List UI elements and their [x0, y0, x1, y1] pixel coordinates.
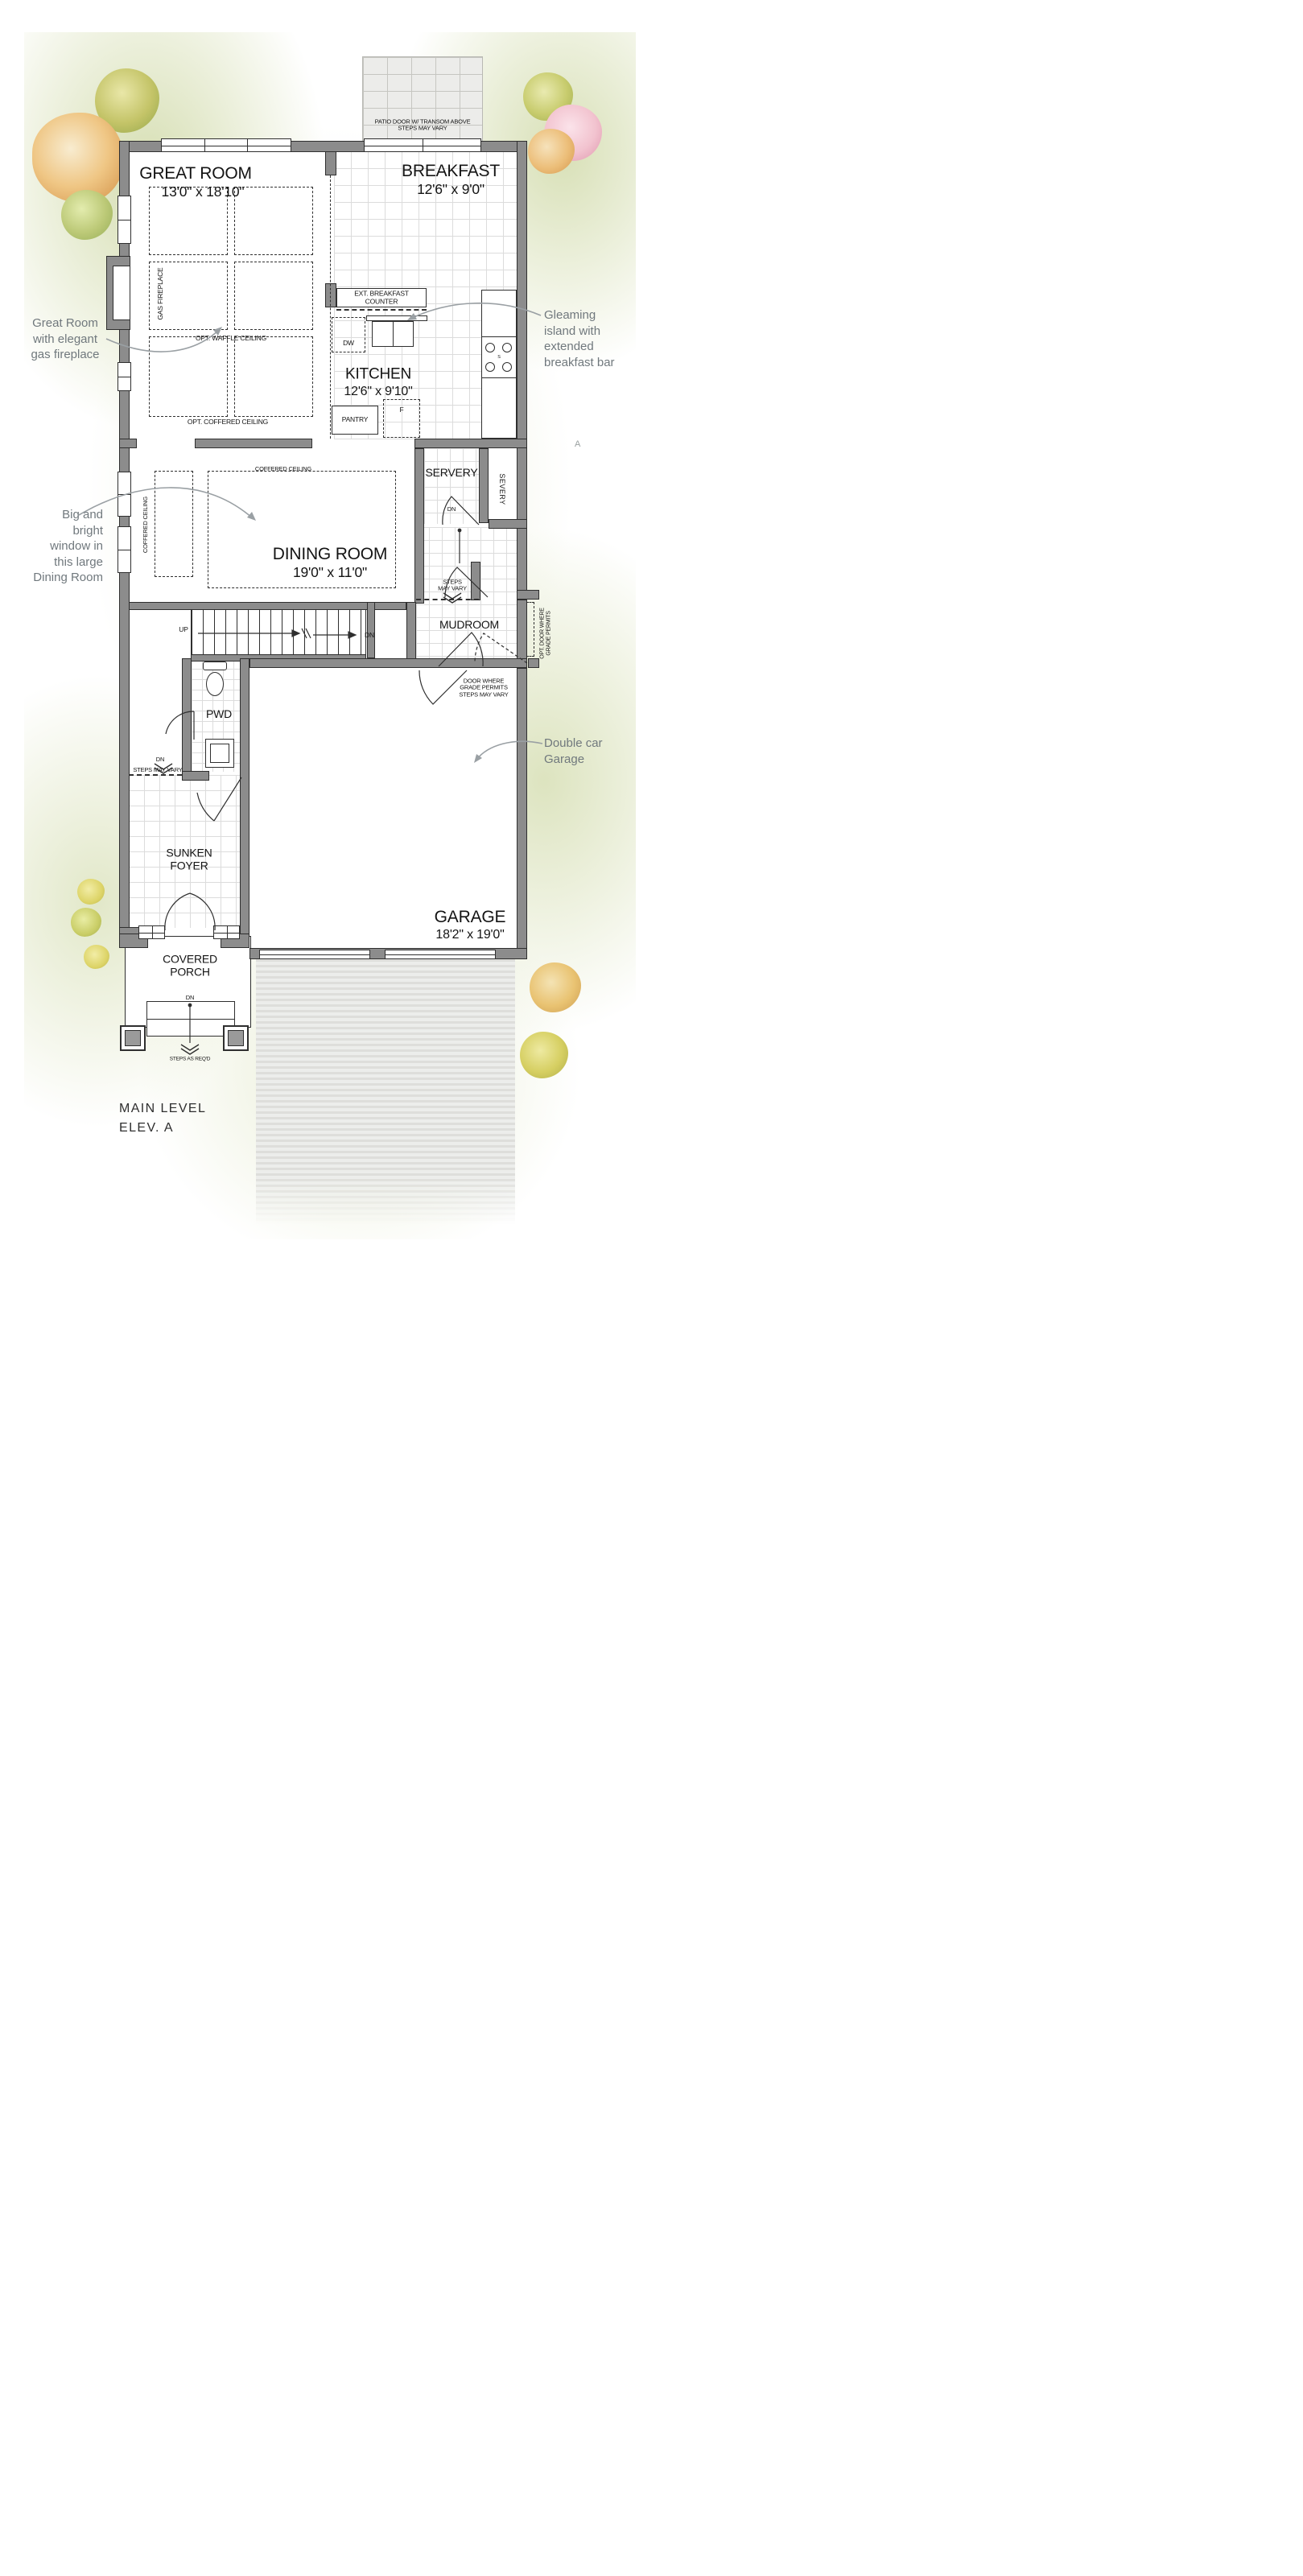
annotation-garage: Double car Garage: [544, 736, 633, 767]
toilet-bowl: [206, 672, 224, 696]
window-mullion: [152, 926, 153, 938]
wall: [489, 519, 527, 529]
dn-stairs-label: DN: [359, 632, 380, 640]
wall: [325, 283, 336, 307]
plan-title: MAIN LEVEL ELEV. A: [119, 1099, 206, 1138]
toilet-tank: [203, 662, 227, 670]
driveway: [256, 959, 515, 1225]
wall: [325, 151, 336, 175]
wall: [249, 658, 527, 668]
kitchen-dims: 12'6" x 9'10": [322, 385, 435, 399]
sunken-foyer-label: SUNKEN FOYER: [149, 847, 229, 872]
mudroom-label: MUDROOM: [425, 619, 513, 632]
patio-door: [364, 138, 481, 152]
window: [118, 362, 131, 391]
steps-hall-label: STEPS MAY VARY: [122, 767, 194, 773]
waffle-ceiling-cell: [234, 262, 313, 330]
up-label: UP: [173, 626, 194, 634]
garage-door-note: DOOR WHERE GRADE PERMITS STEPS MAY VARY: [447, 678, 520, 698]
vanity-sink-basin: [210, 744, 229, 763]
window-mullion: [227, 926, 228, 938]
garage-label: GARAGE: [406, 908, 534, 927]
tree-icon: [32, 113, 124, 203]
island-counter-edge: [366, 315, 427, 321]
opt-coffered-label: OPT. COFFERED CEILING: [171, 418, 284, 427]
window: [138, 925, 165, 939]
gas-fireplace-label: GAS FIREPLACE: [157, 268, 165, 320]
sink-divider: [393, 322, 394, 346]
dining-room-dims: 19'0" x 11'0": [249, 565, 410, 581]
garage-door-panel: [259, 950, 370, 959]
staircase[interactable]: [191, 609, 366, 655]
steps-mudroom-label: STEPS MAY VARY: [424, 579, 480, 593]
fridge: [383, 399, 420, 438]
opt-waffle-label: OPT. WAFFLE CEILING: [179, 335, 283, 343]
powder-label: PWD: [195, 708, 243, 721]
window: [213, 925, 240, 939]
great-room-dims: 13'0" x 18'10": [122, 184, 283, 200]
pantry-label: PANTRY: [332, 416, 377, 424]
firebox: [113, 266, 130, 320]
wall: [414, 439, 527, 448]
breakfast-dims: 12'6" x 9'0": [378, 182, 523, 198]
window: [118, 472, 131, 517]
waffle-ceiling-cell: [149, 336, 228, 417]
window: [118, 196, 131, 244]
wall: [367, 602, 375, 658]
dn-hall-label: DN: [151, 756, 170, 763]
wall: [182, 658, 192, 779]
opt-door-leaf: [526, 602, 534, 657]
annotation-fireplace: Great Room with elegant gas fireplace: [24, 315, 106, 363]
annotation-dining-window: Big and bright window in this large Dini…: [18, 507, 103, 586]
servery-closet-label: SEVERY: [498, 473, 506, 505]
servery-label: SERVERY: [415, 467, 488, 480]
wall: [517, 590, 539, 600]
ext-counter-label: EXT. BREAKFAST COUNTER: [337, 290, 426, 305]
window: [118, 526, 131, 573]
great-room-label: GREAT ROOM: [99, 164, 292, 183]
coffered-ceiling-box: [155, 471, 193, 577]
steps-porch-label: STEPS AS REQ'D: [154, 1056, 226, 1061]
wall: [528, 658, 539, 668]
window-mullion: [204, 139, 205, 151]
porch-pillar: [223, 1025, 249, 1051]
window-mullion: [247, 139, 248, 151]
coffered-label-v: COFFERED CEILING: [142, 497, 149, 553]
dn-porch-label: DN: [180, 995, 200, 1001]
wall: [195, 439, 312, 448]
opt-door-label: OPT. DOOR WHERE GRADE PERMITS: [540, 608, 554, 659]
fridge-label: F: [394, 406, 410, 414]
dining-room-label: DINING ROOM: [225, 545, 435, 564]
dishwasher-label: DW: [336, 340, 361, 348]
steps-line: [416, 599, 479, 600]
counter-dashed-edge: [336, 309, 427, 311]
kitchen-label: KITCHEN: [314, 365, 443, 382]
porch-step-line: [146, 1019, 235, 1020]
annotation-island: Gleaming island with extended breakfast …: [544, 307, 633, 370]
breakfast-label: BREAKFAST: [362, 162, 539, 181]
steps-line: [129, 774, 182, 776]
window-mullion: [423, 139, 423, 151]
porch-pillar: [120, 1025, 146, 1051]
garage-door-panel: [385, 950, 496, 959]
garage-dims: 18'2" x 19'0": [414, 928, 526, 942]
waffle-ceiling-cell: [234, 336, 313, 417]
floor-plan: PATIO DOOR W/ TRANSOM ABOVE STEPS MAY VA…: [0, 0, 652, 1288]
coffered-label-h: COFFERED CEILING: [239, 466, 328, 472]
wall: [479, 448, 489, 523]
covered-porch-label: COVERED PORCH: [146, 953, 234, 978]
wall: [240, 658, 249, 938]
window: [161, 138, 291, 152]
wall: [119, 439, 137, 448]
margin-letter: A: [575, 439, 580, 449]
wall: [517, 141, 527, 600]
dn-servery-label: DN: [442, 506, 461, 513]
patio-door-note: PATIO DOOR W/ TRANSOM ABOVE STEPS MAY VA…: [358, 119, 487, 133]
cooktop-label: S: [494, 355, 504, 360]
